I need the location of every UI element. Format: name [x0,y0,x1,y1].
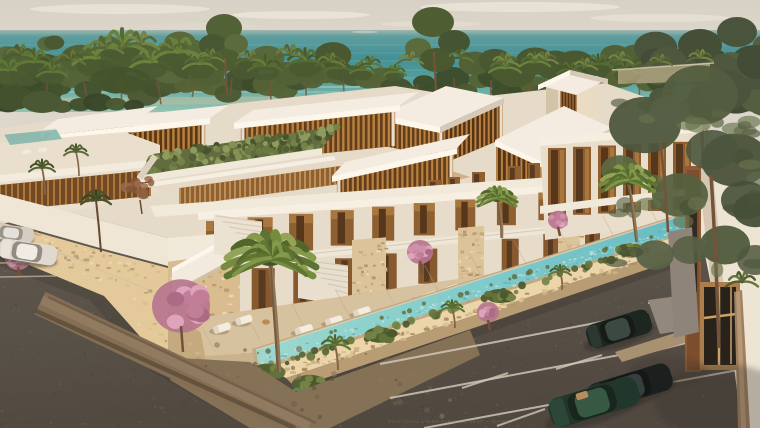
svg-text:STAY LOCAL LIVING PARADISE NES: STAY LOCAL LIVING PARADISE NEST — SHARE [388,419,510,424]
